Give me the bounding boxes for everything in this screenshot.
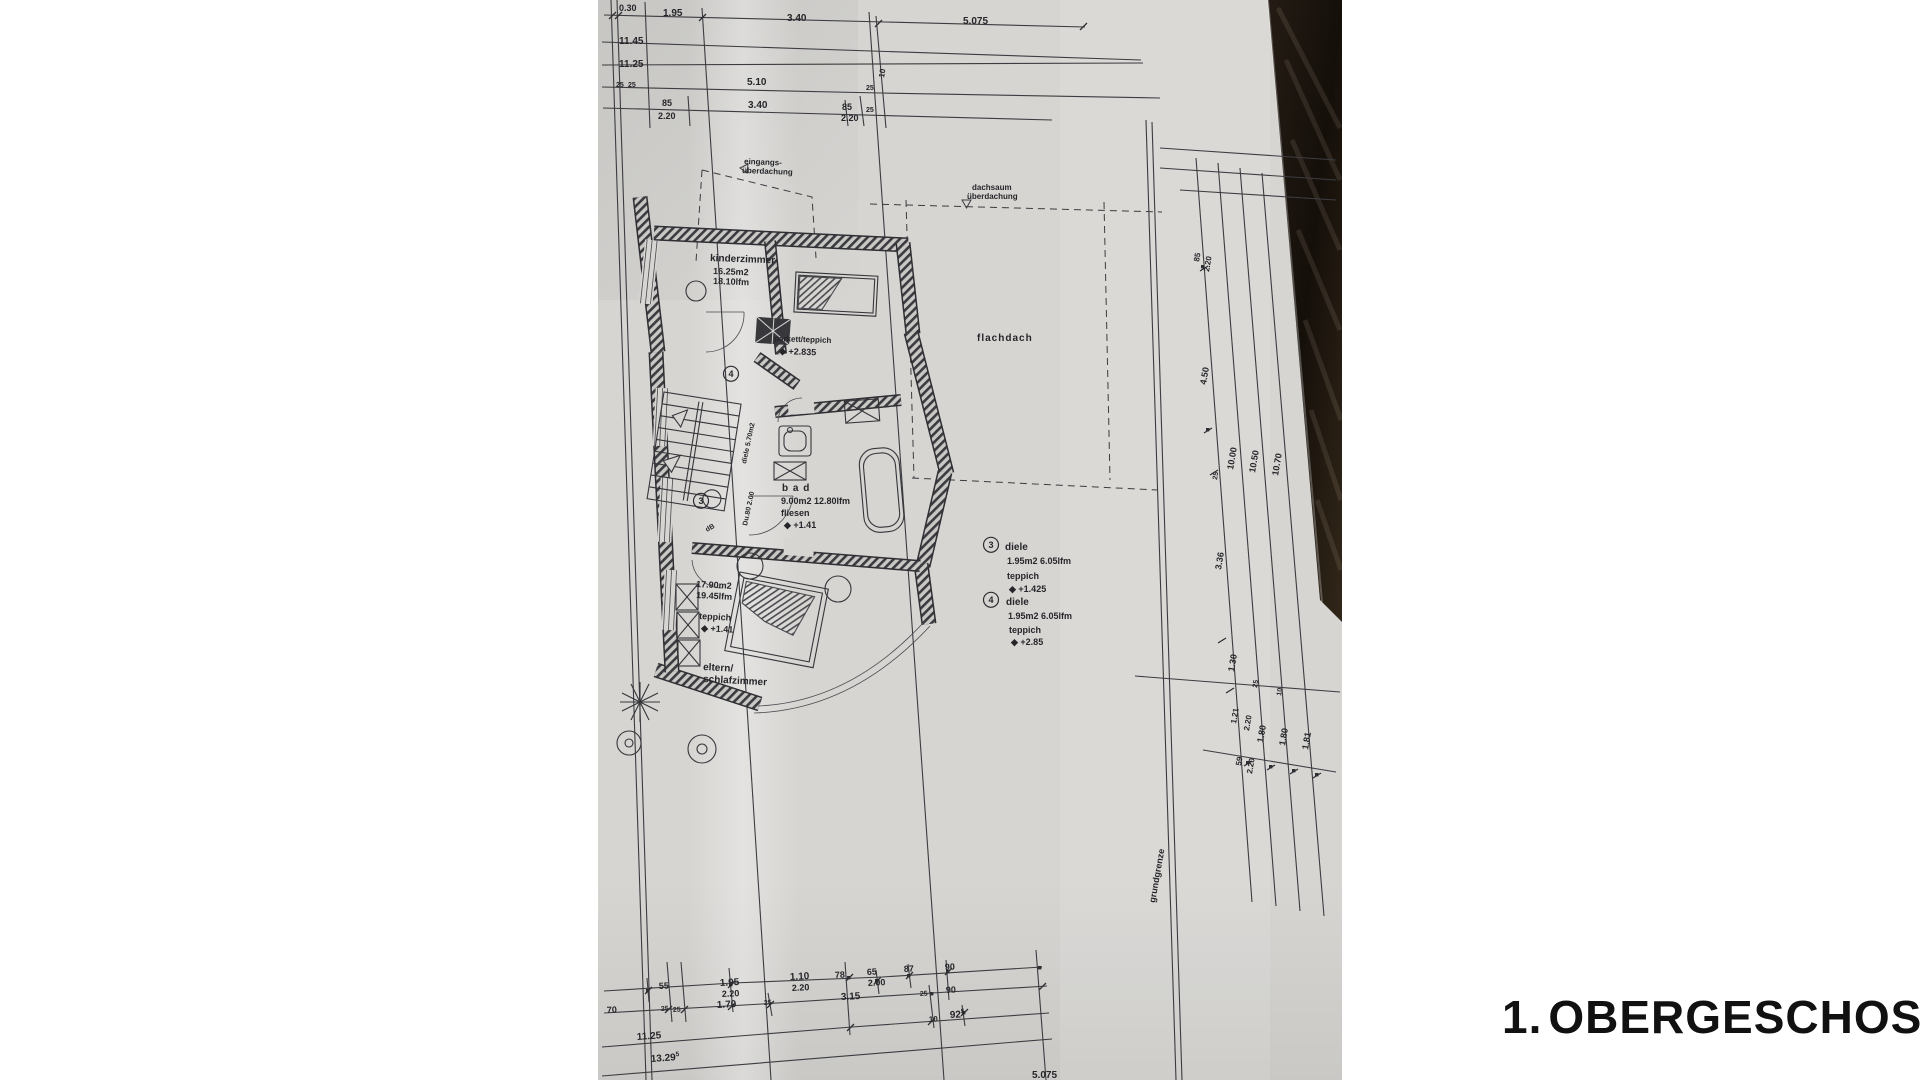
svg-text:überdachung: überdachung [967,192,1018,201]
floor-name: OBERGESCHOSS [1548,991,1920,1043]
svg-text:eltern/: eltern/ [703,662,734,675]
svg-text:3: 3 [988,540,993,550]
plan-label-room-eltern-1: eltern/ [703,662,734,675]
svg-text:kinderzimmer: kinderzimmer [710,253,775,266]
plan-label-b-25c: 25 [764,1000,772,1007]
plan-label-dim-1125: 11.25 [619,59,644,70]
svg-text:0.30: 0.30 [619,3,637,13]
plan-label-bad-level: ◆ +1.41 [783,520,816,530]
page-root: 0.301.953.405.07511.4511.255.10102525258… [0,0,1920,1080]
plan-label-b-195: 1.95 [720,977,740,989]
svg-text:3.15: 3.15 [841,991,861,1003]
floor-number: 1. [1502,991,1542,1043]
svg-text:2.00: 2.00 [868,977,886,988]
plan-label-eltern-floor: teppich [699,611,731,623]
plan-label-lbl-flachdach: flachdach [977,333,1033,344]
plan-label-b-10: 10 [929,1015,939,1024]
plan-label-r-25a: 25 [1212,471,1220,480]
svg-text:13.295: 13.295 [650,1051,680,1065]
plan-label-b-25b: 25 [673,1007,681,1014]
svg-text:3.40: 3.40 [787,13,807,24]
plan-label-kinder-lfm: 18.10lfm [713,276,749,287]
floorplan-photo: 0.301.953.405.07511.4511.255.10102525258… [0,0,1920,1080]
plan-label-room-bad: b a d [782,483,810,494]
plan-label-bad-floor: fliesen [781,508,810,518]
svg-text:25: 25 [1252,679,1260,688]
plan-label-b-13295: 13.295 [650,1051,680,1065]
svg-text:1.95: 1.95 [663,8,683,19]
svg-text:2.20: 2.20 [792,982,810,993]
plan-label-diele4-area: 1.95m2 6.05lfm [1008,611,1072,621]
svg-text:◆ +2.85: ◆ +2.85 [1010,637,1043,647]
svg-text:3: 3 [698,496,703,506]
svg-text:2.20: 2.20 [722,988,740,999]
svg-text:1.95m2 6.05lfm: 1.95m2 6.05lfm [1008,611,1072,621]
svg-text:2.20: 2.20 [841,113,859,123]
plan-label-dim-85a: 85 [662,98,672,108]
svg-text:flachdach: flachdach [977,333,1033,344]
svg-text:4: 4 [988,595,993,605]
svg-text:18.10lfm: 18.10lfm [713,276,749,287]
plan-label-diele3-area: 1.95m2 6.05lfm [1007,556,1071,566]
svg-text:1.95: 1.95 [720,977,740,989]
plan-label-dim-220a: 2.20 [658,111,676,121]
plan-label-b-1125: 11.25 [636,1030,662,1043]
plan-label-dim-25c: 25 [628,82,636,89]
plan-label-b-200: 2.00 [868,977,886,988]
plan-label-b-78: 78 [835,969,846,980]
svg-text:25: 25 [866,85,874,92]
svg-text:65: 65 [867,966,878,977]
svg-text:diele: diele [1005,542,1028,553]
plan-label-b-5075: 5.075 [1032,1070,1057,1080]
svg-text:1.10: 1.10 [790,971,810,983]
svg-text:4: 4 [728,369,733,379]
plan-label-dim-220b: 2.20 [841,113,859,123]
plan-label-dim-25b: 25 [616,82,624,89]
plan-label-diele4-floor: teppich [1009,625,1041,635]
svg-text:25: 25 [673,1007,681,1014]
plan-label-diele3-name: diele [1005,542,1028,553]
svg-text:◆ +1.425: ◆ +1.425 [1008,584,1046,594]
svg-text:dachsaum: dachsaum [972,183,1012,192]
svg-text:diele: diele [1006,597,1029,608]
plan-label-eltern-lfm: 19.45lfm [696,590,733,602]
plan-label-eltern-area: 17.90m2 [696,579,732,591]
svg-text:25: 25 [1212,471,1220,480]
svg-text:überdachung: überdachung [742,166,793,177]
floor-title: 1.OBERGESCHOSS [1502,990,1920,1044]
plan-label-b-220a: 2.20 [722,988,740,999]
plan-label-eltern-level: ◆ +1.41 [700,623,734,635]
plan-label-b-87: 87 [904,963,915,974]
plan-label-dim-340a: 3.40 [787,13,807,24]
plan-label-room-kinderzimmer: kinderzimmer [710,253,775,266]
svg-text:2.20: 2.20 [658,111,676,121]
plan-label-r-10: 10 [1276,687,1284,696]
svg-text:1.70: 1.70 [717,999,737,1011]
svg-text:9.00m2 12.80lfm: 9.00m2 12.80lfm [781,496,850,506]
plan-label-b-70: 70 [607,1004,618,1015]
svg-text:25: 25 [616,82,624,89]
svg-text:85: 85 [842,102,852,112]
svg-text:90: 90 [945,961,956,972]
plan-label-b-170: 1.70 [717,999,737,1011]
svg-text:87: 87 [904,963,915,974]
plan-label-dim-25a: 25 [866,85,874,92]
svg-text:◆ +1.41: ◆ +1.41 [783,520,816,530]
svg-text:3.40: 3.40 [748,100,768,111]
plan-label-b-90b: 90 [946,984,957,995]
svg-text:teppich: teppich [1007,571,1039,581]
svg-text:90: 90 [946,984,957,995]
svg-text:10: 10 [1276,687,1284,696]
svg-text:55: 55 [659,980,670,991]
plan-label-b-65: 65 [867,966,878,977]
svg-text:teppich: teppich [699,611,731,623]
svg-text:11.25: 11.25 [619,59,644,70]
plan-label-diele3-level: ◆ +1.425 [1008,584,1046,594]
svg-text:85: 85 [662,98,672,108]
svg-text:teppich: teppich [1009,625,1041,635]
svg-text:fliesen: fliesen [781,508,810,518]
svg-text:5.075: 5.075 [963,16,988,27]
plan-label-dim-1145: 11.45 [619,36,644,47]
svg-text:25: 25 [866,107,874,114]
svg-text:25: 25 [920,991,928,998]
plan-label-diele4-name: diele [1006,597,1029,608]
plan-label-r-25b: 25 [1252,679,1260,688]
svg-text:5.075: 5.075 [1032,1070,1057,1080]
plan-label-b-110: 1.10 [790,971,810,983]
plan-label-b-55: 55 [659,980,670,991]
plan-label-diele4-level: ◆ +2.85 [1010,637,1043,647]
plan-label-dim-195: 1.95 [663,8,683,19]
svg-text:11.45: 11.45 [619,36,644,47]
plan-label-dim-85b: 85 [842,102,852,112]
svg-text:1.95m2 6.05lfm: 1.95m2 6.05lfm [1007,556,1071,566]
svg-text:◆ +2.835: ◆ +2.835 [778,346,817,357]
svg-text:19.45lfm: 19.45lfm [696,590,733,602]
plan-label-lbl-eingangs-2: überdachung [742,166,793,177]
svg-text:17.90m2: 17.90m2 [696,579,732,591]
plan-label-dim-25d: 25 [866,107,874,114]
plan-label-dim-340b: 3.40 [748,100,768,111]
svg-text:5.10: 5.10 [747,77,767,88]
plan-label-kinder-level: ◆ +2.835 [778,346,817,357]
svg-text:25: 25 [628,82,636,89]
svg-text:◆ +1.41: ◆ +1.41 [700,623,734,635]
plan-label-b-90a: 90 [945,961,956,972]
plan-label-diele3-floor: teppich [1007,571,1039,581]
paper-sheet [598,0,1342,1080]
plan-label-dim-510: 5.10 [747,77,767,88]
plan-label-dim-030: 0.30 [619,3,637,13]
plan-label-b-315: 3.15 [841,991,861,1003]
plan-label-lbl-dachsaum-1: dachsaum [972,183,1012,192]
plan-label-b-25d: 25 [920,991,928,998]
plan-label-bad-area: 9.00m2 12.80lfm [781,496,850,506]
svg-text:11.25: 11.25 [636,1030,662,1043]
svg-text:70: 70 [607,1004,618,1015]
svg-text:25: 25 [661,1006,669,1013]
svg-text:10: 10 [929,1015,939,1024]
svg-text:b a d: b a d [782,483,810,494]
svg-text:25: 25 [764,1000,772,1007]
plan-label-b-220b: 2.20 [792,982,810,993]
plan-label-dim-5075: 5.075 [963,16,988,27]
plan-label-lbl-dachsaum-2: überdachung [967,192,1018,201]
svg-text:78: 78 [835,969,846,980]
plan-label-b-25a: 25 [661,1006,669,1013]
